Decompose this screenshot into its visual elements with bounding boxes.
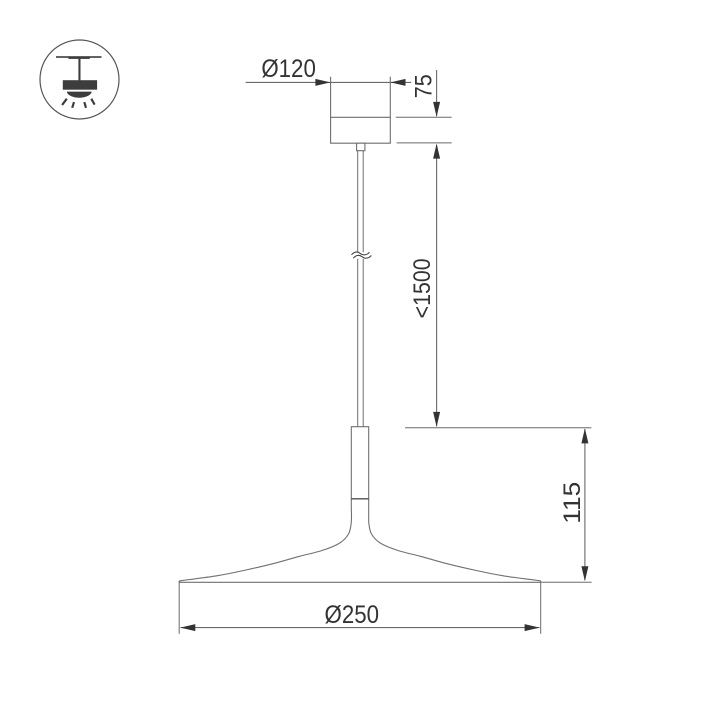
svg-text:<1500: <1500 (409, 258, 436, 318)
svg-text:115: 115 (559, 482, 586, 524)
svg-text:Ø120: Ø120 (261, 55, 316, 83)
svg-text:Ø250: Ø250 (325, 601, 380, 629)
svg-text:75: 75 (411, 74, 438, 98)
